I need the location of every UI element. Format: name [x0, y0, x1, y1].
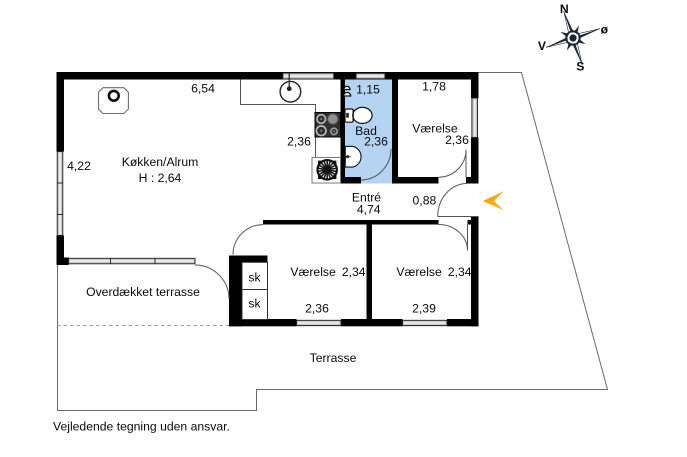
svg-text:2,36: 2,36 [445, 133, 469, 147]
svg-text:1,78: 1,78 [422, 80, 446, 94]
svg-text:2,36: 2,36 [305, 302, 329, 316]
svg-text:sk: sk [248, 297, 261, 311]
svg-text:N: N [560, 2, 569, 16]
svg-text:6,54: 6,54 [191, 82, 215, 96]
svg-text:2,36: 2,36 [364, 134, 388, 148]
svg-text:H : 2,64: H : 2,64 [139, 171, 182, 185]
svg-text:sk: sk [248, 271, 261, 285]
svg-text:2,36: 2,36 [287, 135, 311, 149]
svg-text:ø: ø [601, 23, 609, 37]
svg-text:4,74: 4,74 [357, 203, 381, 217]
svg-text:Værelse 2,34: Værelse 2,34 [396, 265, 471, 279]
svg-text:4,22: 4,22 [67, 159, 91, 173]
svg-text:0,88: 0,88 [413, 194, 437, 208]
svg-text:Værelse 2,34: Værelse 2,34 [290, 265, 365, 279]
svg-text:Køkken/Alrum: Køkken/Alrum [122, 155, 199, 169]
svg-text:S: S [576, 60, 584, 74]
svg-text:Terrasse: Terrasse [310, 351, 357, 365]
svg-text:1,15: 1,15 [356, 83, 380, 97]
svg-text:2,39: 2,39 [412, 302, 436, 316]
svg-text:Overdækket terrasse: Overdækket terrasse [86, 285, 200, 299]
svg-text:Vejledende tegning uden ansvar: Vejledende tegning uden ansvar. [53, 420, 230, 434]
svg-text:V: V [538, 39, 547, 53]
